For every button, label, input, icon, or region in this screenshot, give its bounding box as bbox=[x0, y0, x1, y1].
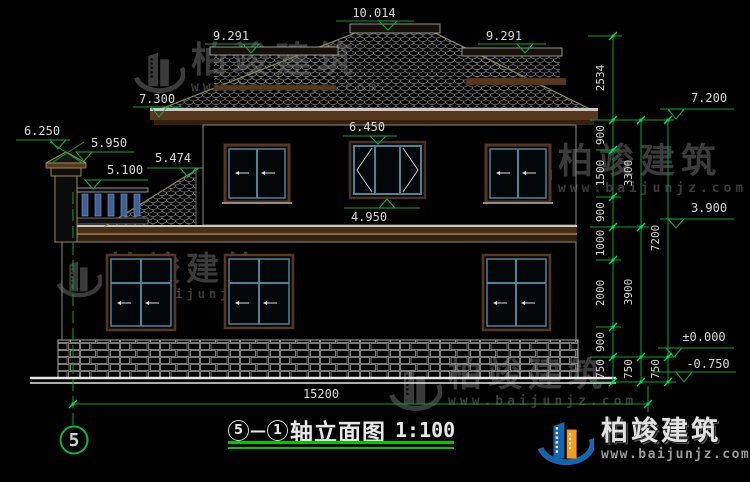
svg-text:5.950: 5.950 bbox=[91, 136, 127, 150]
overall-width-label: 15200 bbox=[303, 387, 339, 401]
svg-text:9.291: 9.291 bbox=[213, 29, 249, 43]
window-2f-right bbox=[483, 145, 553, 204]
axis-bubble-5: 5 bbox=[61, 427, 88, 454]
cad-canvas: 柏竣建筑 www.baijunjz.com 柏竣建筑 www.baijunjz.… bbox=[0, 0, 750, 482]
svg-text:-0.750: -0.750 bbox=[686, 357, 729, 371]
elevation-drawing: 10.014 9.291 9.291 7.300 6.250 5.950 bbox=[0, 0, 750, 482]
title-scale: 1:100 bbox=[395, 418, 455, 442]
dim-label: 900 bbox=[594, 332, 607, 352]
dim-label: 750 bbox=[649, 359, 662, 379]
svg-text:9.291: 9.291 bbox=[486, 29, 522, 43]
dim-label: 750 bbox=[622, 359, 635, 379]
svg-text:5.100: 5.100 bbox=[107, 163, 143, 177]
elevation-marker-window-sill: 4.950 bbox=[344, 199, 420, 224]
right-wing-roof bbox=[462, 48, 566, 85]
title-underline bbox=[228, 441, 454, 444]
dim-label: 2000 bbox=[594, 280, 607, 307]
elevation-marker-site: -0.750 bbox=[653, 357, 736, 382]
elevation-marker-second-floor: 3.900 bbox=[660, 201, 734, 228]
svg-text:±0.000: ±0.000 bbox=[682, 330, 725, 344]
svg-text:10.014: 10.014 bbox=[352, 6, 395, 20]
svg-text:3.900: 3.900 bbox=[691, 201, 727, 215]
brand-logo-icon bbox=[536, 411, 594, 469]
dim-label: 900 bbox=[594, 125, 607, 145]
elevation-marker-right-eave: 7.200 bbox=[660, 91, 734, 119]
dim-label: 3900 bbox=[622, 279, 635, 306]
svg-text:6.450: 6.450 bbox=[349, 120, 385, 134]
dim-label: 900 bbox=[594, 202, 607, 222]
dim-label: 1000 bbox=[594, 230, 607, 257]
dim-label: 750 bbox=[594, 359, 607, 379]
window-2f-center bbox=[350, 142, 425, 198]
floor-band bbox=[58, 225, 577, 242]
window-1f-right bbox=[483, 255, 550, 330]
balcony-balustrade bbox=[76, 188, 148, 224]
title-underline-2 bbox=[228, 447, 454, 449]
window-1f-left bbox=[107, 255, 175, 330]
elevation-marker-chimney-cap: 5.950 bbox=[76, 136, 134, 161]
ground-line bbox=[30, 378, 616, 383]
axis-bubble-label: 5 bbox=[69, 430, 80, 451]
title-axis-start: 5 bbox=[228, 420, 249, 441]
elevation-marker-parapet: 5.100 bbox=[85, 163, 148, 189]
window-1f-middle bbox=[225, 255, 293, 328]
elevation-marker-zero: ±0.000 bbox=[658, 330, 734, 357]
dimension-chains-right: 2534 900 1500 900 1000 2000 900 750 3300… bbox=[588, 32, 676, 386]
svg-text:6.250: 6.250 bbox=[24, 124, 60, 138]
dim-label: 7200 bbox=[649, 225, 662, 252]
svg-text:7.300: 7.300 bbox=[139, 92, 175, 106]
dim-label: 2534 bbox=[594, 64, 607, 91]
title-axis-end: 1 bbox=[267, 420, 288, 441]
left-wing-roof bbox=[210, 47, 338, 90]
stone-base bbox=[58, 340, 578, 378]
dim-label: 1500 bbox=[594, 160, 607, 187]
brand-logo: 柏竣建筑 www.baijunjz.com bbox=[536, 411, 750, 469]
svg-text:4.950: 4.950 bbox=[351, 210, 387, 224]
title-dash: — bbox=[250, 421, 266, 440]
brand-logo-name: 柏竣建筑 bbox=[601, 418, 750, 445]
svg-text:7.200: 7.200 bbox=[691, 91, 727, 105]
window-2f-left bbox=[222, 145, 292, 204]
svg-text:5.474: 5.474 bbox=[155, 151, 191, 165]
dim-label: 3300 bbox=[622, 160, 635, 187]
ridge-cap bbox=[350, 24, 440, 33]
brand-logo-site: www.baijunjz.com bbox=[601, 447, 750, 462]
